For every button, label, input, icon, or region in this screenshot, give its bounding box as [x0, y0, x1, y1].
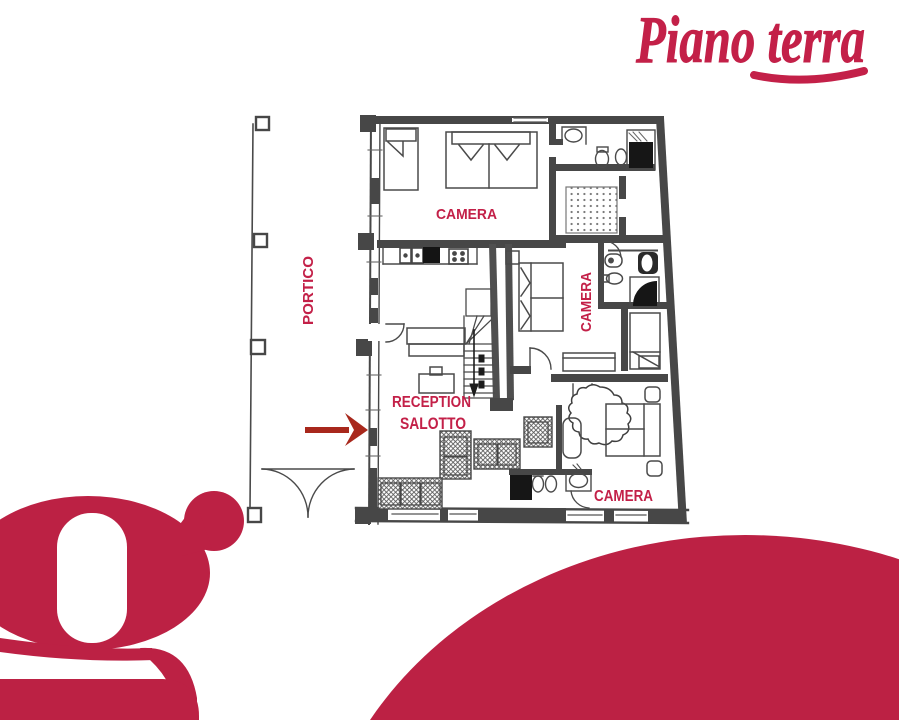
svg-text:PORTICO: PORTICO [300, 256, 317, 325]
svg-text:CAMERA: CAMERA [594, 488, 653, 505]
svg-text:RECEPTION: RECEPTION [392, 394, 471, 411]
svg-text:CAMERA: CAMERA [436, 206, 497, 223]
svg-text:CAMERA: CAMERA [578, 272, 595, 332]
svg-text:SALOTTO: SALOTTO [400, 415, 466, 433]
svg-text:Piano terra: Piano terra [635, 3, 865, 77]
